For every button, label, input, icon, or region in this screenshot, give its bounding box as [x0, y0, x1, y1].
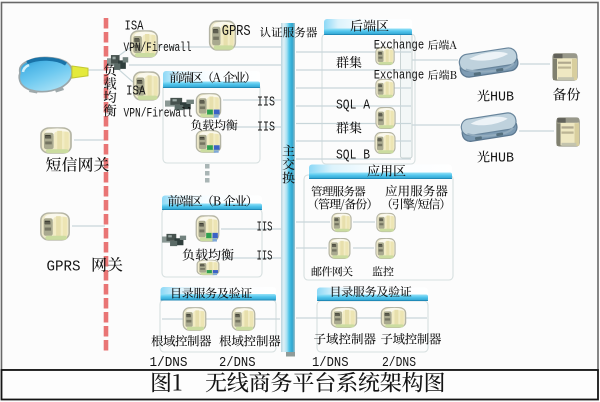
svg-text:Exchange: Exchange — [374, 69, 425, 83]
svg-text:VPN/Firewall: VPN/Firewall — [124, 40, 192, 55]
svg-text:VPN/Firewall: VPN/Firewall — [124, 106, 193, 121]
svg-text:Exchange: Exchange — [374, 39, 425, 53]
svg-text:HUB: HUB — [490, 152, 514, 167]
svg-text:ISA: ISA — [126, 84, 146, 100]
svg-text:IIS: IIS — [257, 249, 273, 265]
svg-text:IIS: IIS — [257, 120, 275, 136]
svg-text:GPRS: GPRS — [222, 23, 251, 40]
svg-text:1/DNS: 1/DNS — [312, 356, 349, 371]
svg-text:SQL B: SQL B — [336, 149, 370, 164]
svg-text:GPRS: GPRS — [47, 259, 81, 276]
svg-text:IIS: IIS — [257, 95, 275, 111]
svg-text:HUB: HUB — [490, 91, 514, 106]
svg-text:SQL A: SQL A — [336, 99, 371, 114]
svg-text:IIS: IIS — [257, 220, 273, 236]
svg-text:2/DNS: 2/DNS — [219, 356, 256, 371]
svg-text:1/DNS: 1/DNS — [150, 356, 188, 371]
svg-text:ISA: ISA — [125, 19, 144, 35]
svg-text:2/DNS: 2/DNS — [382, 356, 416, 371]
